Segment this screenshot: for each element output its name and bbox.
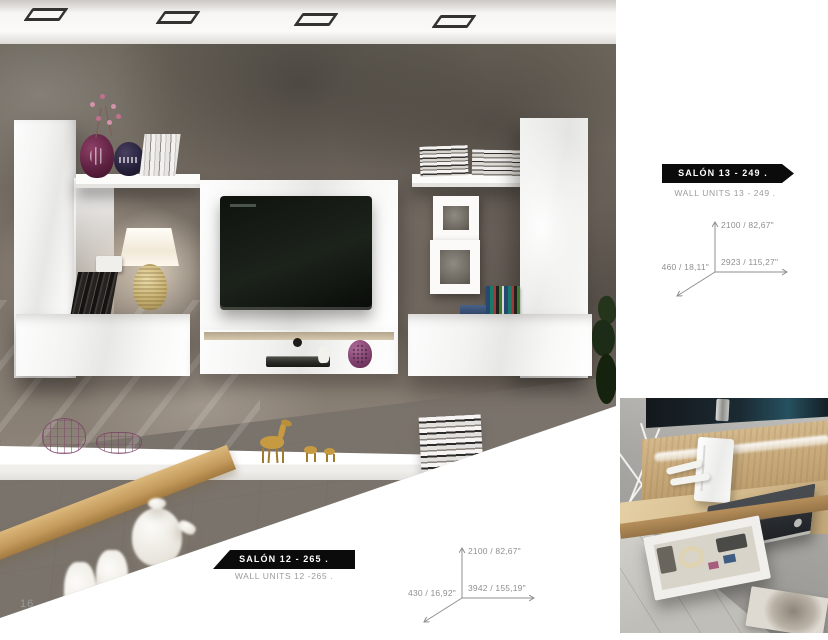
width-dimension: 2923 / 115,27" — [721, 257, 778, 267]
table-lamp-shade — [119, 228, 179, 266]
product-1-name: SALÓN 13 - 249 . — [678, 168, 768, 178]
pink-chip — [708, 561, 719, 570]
golden-deer-figurine — [252, 420, 296, 464]
purple-wire-basket — [42, 418, 86, 454]
detail-photo-media-shelf — [620, 398, 828, 633]
catalog-page: SALÓN 13 - 249 . WALL UNITS 13 - 249 . 2… — [0, 0, 828, 640]
cable-coil — [677, 544, 707, 571]
dark-books-stack — [70, 272, 118, 318]
picture-frame-top — [433, 196, 479, 240]
blue-chip — [723, 554, 736, 564]
front-books-stack — [419, 414, 484, 471]
left-low-cabinet — [16, 314, 190, 376]
page-number: 16 — [20, 598, 34, 610]
depth-arrow-icon — [677, 272, 715, 296]
main-photo-wall-units — [0, 0, 616, 624]
books-on-left-shelf — [139, 134, 180, 176]
metal-clamp — [715, 399, 729, 422]
height-dimension: 2100 / 82,67" — [468, 546, 521, 556]
white-console — [694, 437, 734, 503]
wall-socket — [96, 256, 122, 272]
depth-dimension: 460 / 18,11" — [662, 262, 709, 272]
dark-box — [656, 545, 677, 574]
depth-dimension: 430 / 16,92" — [408, 588, 456, 598]
product-1-dimension-diagram: 2100 / 82,67" 2923 / 115,27" 460 / 18,11… — [637, 212, 817, 307]
black-knob — [293, 338, 302, 347]
product-2-subtitle: WALL UNITS 12 -265 . — [213, 571, 355, 581]
table-lamp-base — [133, 264, 167, 310]
right-low-cabinet — [408, 314, 592, 376]
product-1-banner: SALÓN 13 - 249 . — [662, 164, 794, 183]
stacked-books-left — [419, 145, 468, 177]
purple-wire-bowl — [96, 432, 142, 454]
width-dimension: 3942 / 155,19" — [468, 583, 526, 593]
pink-flower-sprigs — [84, 94, 130, 146]
teapot — [132, 508, 182, 566]
stacked-books-right — [472, 150, 524, 177]
white-figurine — [318, 347, 330, 364]
depth-arrow-icon — [424, 598, 462, 622]
purple-perforated-vase — [348, 340, 372, 368]
magazine-on-floor — [745, 586, 828, 633]
tv-screen — [220, 196, 372, 310]
plant — [592, 296, 617, 408]
product-2-banner: SALÓN 12 - 265 . — [213, 550, 355, 569]
product-1-subtitle: WALL UNITS 13 - 249 . — [655, 188, 795, 198]
product-2-name: SALÓN 12 - 265 . — [239, 554, 329, 564]
golden-deer-figurine-small — [302, 442, 342, 464]
product-2-dimension-diagram: 2100 / 82,67" 3942 / 155,19" 430 / 16,92… — [384, 538, 564, 633]
gadget — [716, 533, 748, 552]
picture-frame-bottom — [430, 240, 480, 294]
height-dimension: 2100 / 82,67" — [721, 220, 774, 230]
